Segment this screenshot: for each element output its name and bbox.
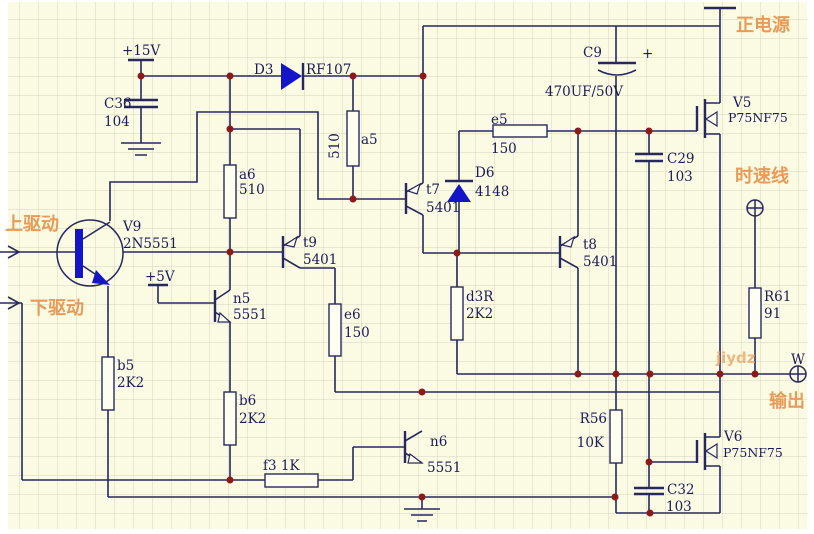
- circuit-schematic: +15V C36 104 D3 RF107 a6 510 a5 510 C9 +…: [0, 0, 814, 534]
- label-d3r-ref: d3R: [466, 289, 494, 305]
- label-e5-val: 150: [491, 141, 517, 157]
- label-c9-plus: +: [642, 46, 653, 62]
- label-b5-val: 2K2: [117, 375, 144, 391]
- label-f3: f3 1K: [263, 458, 300, 474]
- label-t8-ref: t8: [583, 237, 597, 253]
- label-v9-val: 2N5551: [123, 236, 178, 252]
- label-upper-drive: 上驱动: [5, 214, 59, 235]
- label-c29-val: 103: [667, 169, 693, 185]
- label-r56-val: 10K: [577, 435, 605, 451]
- label-d3r-val: 2K2: [466, 306, 493, 322]
- margin-top: [0, 0, 814, 2]
- label-n5-ref: n5: [233, 291, 250, 307]
- label-b6-val: 2K2: [239, 411, 266, 427]
- label-c36-ref: C36: [104, 96, 132, 112]
- label-b6-ref: b6: [239, 393, 256, 409]
- label-5v: +5V: [145, 269, 175, 285]
- label-n6-ref: n6: [430, 434, 447, 450]
- resistor-r61: [749, 288, 761, 338]
- label-t8-val: 5401: [583, 254, 617, 270]
- resistor-f3: [265, 474, 318, 487]
- label-tach-line: 时速线: [735, 165, 789, 187]
- label-t7-val: 5401: [426, 200, 460, 216]
- label-d6-val: 4148: [475, 184, 509, 200]
- label-w-terminal: W: [791, 352, 805, 368]
- label-e6-val: 150: [344, 325, 370, 341]
- margin-bottom: [0, 529, 814, 534]
- schematic-canvas: +15V C36 104 D3 RF107 a6 510 a5 510 C9 +…: [0, 0, 814, 534]
- margin-left: [0, 0, 8, 534]
- label-positive-supply: 正电源: [736, 14, 790, 36]
- label-d3-ref: D3: [254, 62, 273, 78]
- label-lower-drive: 下驱动: [30, 298, 84, 319]
- label-v9-ref: V9: [122, 219, 141, 235]
- label-t7-ref: t7: [426, 182, 440, 198]
- label-15v: +15V: [122, 43, 160, 59]
- margin-right: [807, 0, 814, 534]
- label-v5-ref: V5: [732, 95, 751, 111]
- label-a6-val: 510: [239, 182, 265, 198]
- label-r56-ref: R56: [580, 411, 607, 427]
- resistor-b5: [102, 357, 114, 410]
- resistor-b6: [224, 392, 236, 445]
- label-c9-ref: C9: [583, 45, 602, 61]
- label-c36-val: 104: [104, 114, 130, 130]
- label-a5-ref: a5: [361, 132, 378, 148]
- resistor-a6: [224, 165, 236, 218]
- label-n5-val: 5551: [233, 307, 267, 323]
- label-c29-ref: C29: [667, 151, 695, 167]
- label-t9-ref: t9: [303, 235, 317, 251]
- label-b5-ref: b5: [117, 358, 134, 374]
- label-v6-ref: V6: [723, 429, 742, 445]
- label-d6-ref: D6: [475, 165, 494, 181]
- label-e6-ref: e6: [344, 307, 361, 323]
- label-v5-val: P75NF75: [728, 110, 788, 125]
- label-a6-ref: a6: [239, 167, 256, 183]
- label-n6-val: 5551: [427, 460, 461, 476]
- label-output: 输出: [769, 390, 805, 412]
- label-watermark: jiydz: [715, 349, 756, 367]
- terminal-w: [790, 366, 806, 382]
- transistor-v9-base-bar: [75, 229, 83, 278]
- label-t9-val: 5401: [303, 252, 337, 268]
- resistor-r56: [610, 410, 622, 463]
- resistor-a5: [347, 111, 359, 166]
- label-d3-val: RF107: [306, 62, 351, 78]
- resistor-d3r: [451, 287, 463, 340]
- resistor-e6: [329, 304, 341, 356]
- label-a5-val: 510: [327, 133, 343, 159]
- label-v6-val: P75NF75: [723, 445, 783, 460]
- label-c32-ref: C32: [667, 482, 695, 498]
- label-c9-val: 470UF/50V: [545, 84, 623, 100]
- label-r61-ref: R61: [764, 289, 791, 305]
- terminal-tach: [747, 200, 763, 216]
- label-r61-val: 91: [764, 306, 781, 322]
- label-e5-ref: e5: [491, 112, 508, 128]
- label-c32-val: 103: [666, 499, 692, 515]
